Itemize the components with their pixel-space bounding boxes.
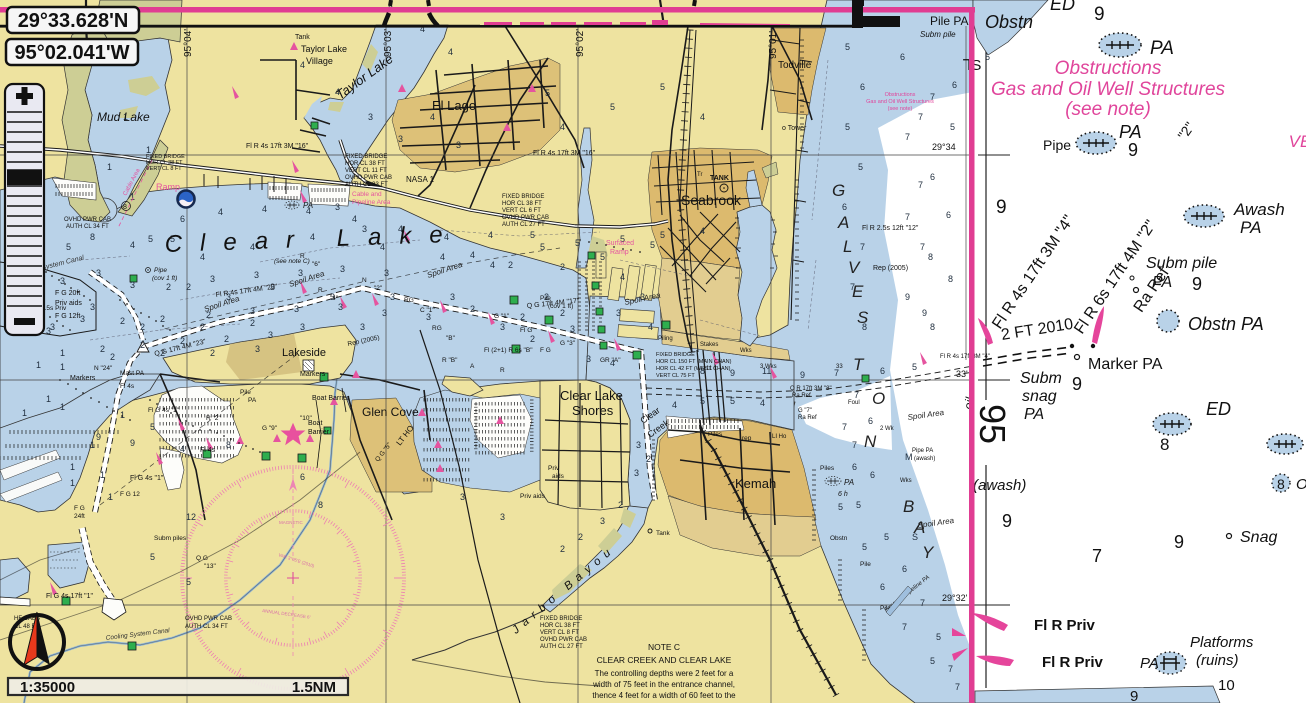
svg-text:5: 5: [600, 252, 605, 262]
svg-text:6 h: 6 h: [838, 491, 848, 498]
svg-text:5: 5: [540, 242, 545, 252]
svg-text:24ft: 24ft: [74, 513, 85, 520]
svg-text:29°33.628'N: 29°33.628'N: [18, 10, 129, 32]
svg-text:2: 2: [166, 282, 171, 292]
svg-text:3: 3: [570, 324, 575, 334]
svg-text:Barrier: Barrier: [308, 429, 330, 436]
svg-text:4: 4: [488, 230, 493, 240]
svg-text:7: 7: [920, 598, 925, 608]
svg-text:1: 1: [22, 408, 27, 418]
svg-text:Priv: Priv: [548, 465, 560, 472]
svg-text:(cov 1 ft): (cov 1 ft): [152, 275, 177, 282]
svg-text:Ramp: Ramp: [610, 249, 629, 256]
svg-text:1: 1: [70, 478, 75, 488]
svg-text:Subm: Subm: [1020, 370, 1062, 387]
svg-text:HOR CL 38 FT: HOR CL 38 FT: [345, 161, 385, 167]
svg-text:9: 9: [1192, 274, 1202, 294]
svg-text:R "B": R "B": [442, 357, 458, 364]
svg-text:5: 5: [936, 632, 941, 642]
svg-text:2: 2: [100, 344, 105, 354]
svg-text:3: 3: [636, 440, 641, 450]
svg-text:3: 3: [130, 280, 135, 290]
svg-text:Glen Cove: Glen Cove: [362, 405, 419, 419]
svg-text:3: 3: [80, 314, 85, 324]
svg-text:1: 1: [120, 410, 125, 420]
svg-text:Fl 4s: Fl 4s: [200, 447, 216, 454]
svg-text:G "3": G "3": [560, 340, 576, 347]
svg-text:snag: snag: [1022, 388, 1057, 405]
svg-text:8: 8: [928, 252, 933, 262]
svg-text:4: 4: [448, 47, 453, 57]
svg-text:Q R 17ft 3M "8": Q R 17ft 3M "8": [790, 386, 832, 392]
svg-text:3: 3: [360, 322, 365, 332]
svg-text:95°03': 95°03': [383, 29, 394, 57]
svg-text:6: 6: [952, 80, 957, 90]
svg-text:Fl R 4s 17ft 3M "4": Fl R 4s 17ft 3M "4": [940, 354, 990, 360]
svg-text:1:35000: 1:35000: [20, 679, 75, 696]
svg-text:7: 7: [842, 422, 847, 432]
svg-text:2: 2: [520, 312, 525, 322]
svg-text:PA: PA: [303, 201, 313, 210]
svg-text:rep: rep: [742, 435, 752, 442]
svg-text:Tank: Tank: [656, 530, 670, 537]
svg-text:3: 3: [268, 330, 273, 340]
svg-text:OVHD PWR CAB: OVHD PWR CAB: [502, 215, 549, 221]
svg-text:7: 7: [905, 212, 910, 222]
svg-text:3: 3: [335, 202, 340, 212]
svg-text:Shores: Shores: [572, 403, 614, 418]
svg-text:HOR CL 42 FT (WEST CHAN): HOR CL 42 FT (WEST CHAN): [656, 366, 731, 372]
svg-text:5: 5: [150, 422, 155, 432]
svg-text:Pipeline Area: Pipeline Area: [352, 199, 391, 206]
svg-text:RG: RG: [404, 297, 414, 304]
svg-text:G: G: [832, 181, 845, 200]
svg-text:3: 3: [96, 268, 101, 278]
svg-text:(see note): (see note): [888, 106, 913, 112]
svg-text:OVHD PWR CAB: OVHD PWR CAB: [540, 637, 587, 643]
svg-text:3 Wks: 3 Wks: [760, 364, 777, 370]
svg-text:FIXED BRIDGE: FIXED BRIDGE: [502, 194, 544, 200]
svg-text:2 Wk: 2 Wk: [880, 426, 895, 432]
svg-text:3: 3: [384, 268, 389, 278]
svg-text:Village: Village: [306, 56, 333, 66]
svg-text:VERT CL 6 FT: VERT CL 6 FT: [502, 208, 541, 214]
svg-text:4: 4: [470, 250, 475, 260]
svg-text:5: 5: [862, 542, 867, 552]
svg-text:Taylor Lake: Taylor Lake: [301, 44, 347, 54]
svg-text:1: 1: [107, 162, 112, 172]
svg-text:7: 7: [902, 622, 907, 632]
svg-text:PA: PA: [248, 397, 257, 404]
svg-text:6: 6: [900, 52, 905, 62]
svg-text:PA: PA: [1150, 38, 1174, 59]
svg-text:3: 3: [390, 292, 395, 302]
svg-text:2: 2: [250, 318, 255, 328]
svg-text:9: 9: [1128, 140, 1138, 160]
svg-text:VE: VE: [1289, 132, 1306, 151]
svg-text:RG: RG: [432, 325, 442, 332]
svg-text:(awash): (awash): [914, 456, 935, 462]
svg-text:6: 6: [852, 462, 857, 472]
svg-text:95: 95: [972, 404, 1013, 444]
svg-text:9: 9: [1130, 688, 1138, 703]
svg-text:5: 5: [610, 102, 615, 112]
svg-text:9: 9: [800, 370, 805, 380]
svg-text:aids: aids: [552, 473, 565, 480]
svg-text:C "1": C "1": [420, 307, 435, 314]
svg-text:Y: Y: [922, 543, 935, 562]
svg-text:CLEAR CREEK AND CLEAR LAKE: CLEAR CREEK AND CLEAR LAKE: [597, 655, 732, 665]
svg-text:Ra Ref: Ra Ref: [792, 393, 811, 399]
svg-text:9: 9: [922, 308, 927, 318]
svg-text:HOR CL 150 FT (MAIN CHAN): HOR CL 150 FT (MAIN CHAN): [656, 359, 732, 365]
svg-text:6: 6: [300, 472, 305, 482]
svg-text:9: 9: [130, 438, 135, 448]
svg-text:7: 7: [854, 390, 859, 400]
svg-text:5: 5: [884, 532, 889, 542]
svg-text:G "1": G "1": [494, 313, 510, 320]
svg-text:3: 3: [616, 308, 621, 318]
svg-text:3: 3: [398, 134, 403, 144]
svg-text:Fl (2+1) R 6s "B": Fl (2+1) R 6s "B": [484, 347, 533, 354]
svg-text:Obstn: Obstn: [985, 12, 1033, 32]
svg-text:29°32': 29°32': [942, 593, 968, 603]
svg-text:Kemah: Kemah: [735, 476, 776, 491]
svg-text:3: 3: [338, 302, 343, 312]
svg-text:3: 3: [340, 264, 345, 274]
svg-text:R "2": R "2": [206, 415, 221, 422]
svg-text:R: R: [500, 367, 505, 374]
svg-text:VERT CL 75 FT: VERT CL 75 FT: [656, 373, 695, 379]
svg-text:3: 3: [90, 302, 95, 312]
svg-text:2: 2: [560, 262, 565, 272]
svg-text:PA: PA: [1119, 122, 1142, 142]
svg-text:2: 2: [160, 314, 165, 324]
svg-text:5: 5: [545, 88, 550, 98]
svg-text:Awash: Awash: [1233, 200, 1285, 219]
svg-text:8: 8: [318, 500, 323, 510]
svg-text:E: E: [852, 282, 864, 301]
svg-text:95°04': 95°04': [183, 29, 194, 57]
svg-text:3: 3: [255, 344, 260, 354]
svg-text:Fl R 4s 17ft 3M "16": Fl R 4s 17ft 3M "16": [533, 150, 596, 157]
svg-text:(ruins): (ruins): [1196, 652, 1239, 669]
svg-text:Subm pile: Subm pile: [920, 30, 956, 39]
svg-text:Snag: Snag: [1240, 529, 1277, 546]
svg-text:FIXED BRIDGE: FIXED BRIDGE: [656, 352, 695, 358]
svg-text:5: 5: [730, 396, 735, 406]
svg-text:6: 6: [180, 214, 185, 224]
svg-text:AUTH CL 27 FT: AUTH CL 27 FT: [540, 644, 583, 650]
svg-text:Surfaced: Surfaced: [606, 240, 634, 247]
svg-text:Mast PA: Mast PA: [120, 370, 145, 377]
svg-text:3: 3: [294, 304, 299, 314]
svg-text:5: 5: [930, 656, 935, 666]
svg-text:5: 5: [838, 502, 843, 512]
svg-text:Seabrook: Seabrook: [681, 192, 742, 208]
svg-text:3: 3: [586, 354, 591, 364]
svg-text:2: 2: [120, 316, 125, 326]
svg-text:8: 8: [90, 232, 95, 242]
svg-text:5: 5: [700, 396, 705, 406]
svg-text:4: 4: [700, 226, 705, 236]
svg-text:PA: PA: [1024, 406, 1044, 423]
svg-text:9: 9: [996, 197, 1007, 218]
svg-text:AUTH CL 34 FT: AUTH CL 34 FT: [185, 624, 228, 630]
svg-text:The controlling depths were 2: The controlling depths were 2 feet for a: [595, 669, 734, 678]
svg-text:2: 2: [508, 260, 513, 270]
svg-text:8: 8: [948, 274, 953, 284]
svg-text:Obstn: Obstn: [830, 535, 848, 542]
svg-text:Markers: Markers: [300, 371, 326, 378]
svg-text:Fl G 4s "1": Fl G 4s "1": [148, 407, 180, 414]
svg-text:4: 4: [300, 60, 305, 70]
svg-text:11: 11: [706, 366, 713, 372]
svg-text:10: 10: [1218, 677, 1235, 694]
svg-text:4: 4: [700, 112, 705, 122]
svg-text:2: 2: [470, 304, 475, 314]
svg-text:5: 5: [950, 122, 955, 132]
svg-text:NASA 1: NASA 1: [406, 175, 435, 184]
svg-text:3: 3: [500, 512, 505, 522]
svg-text:8: 8: [930, 322, 935, 332]
svg-text:4: 4: [180, 444, 185, 454]
svg-text:Fl R Priv: Fl R Priv: [1034, 617, 1096, 634]
svg-text:9: 9: [730, 368, 735, 378]
svg-text:LI Ho: LI Ho: [772, 434, 787, 440]
svg-text:5: 5: [186, 577, 191, 587]
svg-text:12: 12: [186, 512, 196, 522]
svg-text:Fl G: Fl G: [520, 327, 532, 334]
svg-text:F G: F G: [74, 505, 85, 512]
svg-text:"6": "6": [312, 261, 321, 268]
svg-text:9: 9: [1072, 374, 1082, 394]
svg-text:Subm piles: Subm piles: [154, 535, 187, 542]
svg-text:3: 3: [450, 292, 455, 302]
svg-text:33: 33: [836, 364, 843, 370]
svg-text:Piling: Piling: [658, 336, 673, 342]
svg-text:HOR CL 38 FT: HOR CL 38 FT: [540, 623, 580, 629]
svg-text:Obstructions: Obstructions: [1055, 58, 1162, 79]
svg-text:8: 8: [1160, 435, 1169, 454]
svg-text:4: 4: [440, 252, 445, 262]
svg-text:Tr: Tr: [697, 172, 702, 178]
svg-text:5: 5: [845, 42, 850, 52]
svg-text:95°01': 95°01': [768, 31, 779, 59]
svg-text:3: 3: [368, 112, 373, 122]
svg-text:Boat Barrier: Boat Barrier: [312, 395, 350, 402]
svg-text:Rep (2005): Rep (2005): [873, 265, 908, 272]
svg-text:A: A: [837, 213, 849, 232]
svg-text:Pipe PA: Pipe PA: [912, 448, 933, 454]
svg-text:1: 1: [60, 402, 65, 412]
svg-text:FIXED BRIDGE: FIXED BRIDGE: [540, 616, 582, 622]
svg-text:6: 6: [880, 366, 885, 376]
svg-text:4: 4: [560, 122, 565, 132]
svg-text:6: 6: [860, 82, 865, 92]
svg-text:Q G: Q G: [196, 555, 208, 562]
svg-text:N "24": N "24": [94, 365, 113, 372]
svg-text:1: 1: [108, 492, 113, 502]
svg-text:"13": "13": [204, 563, 217, 570]
svg-text:1: 1: [100, 470, 105, 480]
svg-text:7: 7: [918, 180, 923, 190]
svg-text:95°02.041'W: 95°02.041'W: [14, 42, 129, 64]
svg-text:Wks: Wks: [740, 348, 752, 354]
svg-text:N: N: [362, 277, 367, 284]
svg-text:6: 6: [870, 470, 875, 480]
svg-text:3: 3: [500, 322, 505, 332]
svg-text:Lakeside: Lakeside: [282, 347, 326, 359]
svg-text:O: O: [1296, 476, 1306, 493]
svg-text:V: V: [848, 258, 861, 277]
svg-text:S: S: [857, 308, 869, 327]
svg-text:R: R: [318, 287, 323, 294]
svg-text:F G 12: F G 12: [120, 491, 140, 498]
svg-text:O: O: [872, 389, 885, 408]
svg-text:9: 9: [96, 432, 101, 442]
svg-text:El Lago: El Lago: [432, 98, 476, 113]
svg-text:6: 6: [880, 582, 885, 592]
svg-text:A: A: [470, 363, 475, 370]
svg-text:1: 1: [60, 362, 65, 372]
svg-text:L: L: [843, 237, 852, 256]
svg-text:3: 3: [600, 516, 605, 526]
svg-text:6: 6: [842, 202, 847, 212]
svg-text:Priv aids: Priv aids: [520, 493, 546, 500]
svg-text:5: 5: [150, 552, 155, 562]
svg-text:OVHD PWR CAB: OVHD PWR CAB: [185, 616, 232, 622]
svg-text:Fl R 4s 17ft 3M "16": Fl R 4s 17ft 3M "16": [246, 143, 309, 150]
svg-text:1: 1: [36, 360, 41, 370]
svg-text:F G: F G: [540, 347, 551, 354]
svg-text:1: 1: [130, 192, 135, 202]
svg-text:4: 4: [490, 260, 495, 270]
svg-text:33': 33': [956, 369, 968, 379]
svg-text:Obstn PA: Obstn PA: [1188, 314, 1264, 334]
svg-text:7: 7: [860, 242, 865, 252]
svg-text:Pipe: Pipe: [154, 267, 167, 274]
svg-text:2: 2: [140, 340, 145, 350]
svg-text:6: 6: [868, 416, 873, 426]
svg-text:95°02': 95°02': [575, 29, 586, 57]
svg-text:29°34: 29°34: [932, 142, 956, 152]
svg-text:HOR CL 38 FT: HOR CL 38 FT: [502, 201, 542, 207]
svg-text:Piles: Piles: [820, 465, 835, 472]
svg-text:2: 2: [530, 334, 535, 344]
svg-text:Tank: Tank: [295, 34, 310, 41]
svg-text:1.5NM: 1.5NM: [292, 679, 336, 696]
svg-text:T: T: [853, 355, 865, 374]
svg-text:AUTH CL 27 FT: AUTH CL 27 FT: [502, 222, 545, 228]
svg-text:3: 3: [210, 274, 215, 284]
svg-text:9: 9: [1002, 511, 1012, 531]
svg-text:7: 7: [948, 664, 953, 674]
svg-text:Platforms: Platforms: [1190, 634, 1254, 651]
svg-text:(see note C): (see note C): [274, 258, 310, 265]
svg-text:7: 7: [1092, 546, 1102, 566]
svg-text:2: 2: [224, 334, 229, 344]
svg-text:o Tower: o Tower: [782, 125, 807, 132]
svg-text:3: 3: [300, 322, 305, 332]
svg-text:3: 3: [456, 140, 461, 150]
svg-text:6: 6: [930, 172, 935, 182]
svg-text:Fl R Priv: Fl R Priv: [1042, 654, 1104, 671]
svg-text:Fl G 4s "1": Fl G 4s "1": [130, 475, 164, 482]
svg-text:Pile: Pile: [240, 389, 251, 396]
svg-text:G "9": G "9": [262, 425, 278, 432]
svg-text:Boat: Boat: [308, 420, 322, 427]
svg-text:5: 5: [66, 242, 71, 252]
svg-text:"2": "2": [374, 285, 383, 292]
svg-text:4: 4: [218, 207, 223, 217]
svg-text:4: 4: [262, 204, 267, 214]
svg-text:4: 4: [430, 112, 435, 122]
svg-text:Obstructions: Obstructions: [885, 92, 916, 98]
svg-text:1: 1: [60, 348, 65, 358]
svg-text:8: 8: [226, 440, 231, 450]
svg-text:8: 8: [1277, 476, 1285, 492]
svg-text:2: 2: [186, 282, 191, 292]
svg-text:2: 2: [110, 352, 115, 362]
svg-text:6: 6: [946, 210, 951, 220]
svg-text:3: 3: [46, 326, 51, 336]
svg-text:2: 2: [140, 322, 145, 332]
svg-text:3: 3: [382, 308, 387, 318]
svg-text:9: 9: [1174, 532, 1184, 552]
svg-text:2: 2: [578, 532, 583, 542]
svg-text:Todville: Todville: [778, 60, 812, 71]
svg-text:9: 9: [905, 292, 910, 302]
svg-text:F G 12ft: F G 12ft: [55, 313, 80, 320]
svg-text:Ramp: Ramp: [156, 182, 180, 192]
svg-text:width of 75 feet in the en: width of 75 feet in the entrance channel…: [592, 680, 735, 689]
svg-text:4: 4: [352, 214, 357, 224]
svg-text:5: 5: [912, 362, 917, 372]
svg-text:G "7": G "7": [798, 408, 812, 414]
svg-text:Gas and Oil Well Structures: Gas and Oil Well Structures: [866, 99, 934, 105]
svg-text:ED: ED: [1206, 399, 1231, 419]
svg-text:Pile: Pile: [860, 561, 871, 568]
svg-text:Marker PA: Marker PA: [1088, 356, 1163, 373]
svg-text:2: 2: [618, 500, 623, 510]
svg-text:1: 1: [90, 440, 95, 450]
svg-text:8: 8: [123, 204, 127, 211]
svg-text:Markers: Markers: [70, 375, 96, 382]
svg-text:thence 4 feet for a width: thence 4 feet for a width of 60 feet to …: [592, 691, 736, 700]
svg-text:TANK: TANK: [710, 175, 729, 182]
svg-text:OVHD PWR CAB: OVHD PWR CAB: [345, 175, 392, 181]
svg-text:B: B: [903, 497, 914, 516]
svg-text:3: 3: [634, 468, 639, 478]
svg-text:Gas and Oil Well Structures: Gas and Oil Well Structures: [991, 79, 1226, 100]
svg-text:Stakes: Stakes: [700, 342, 718, 348]
svg-text:7: 7: [905, 132, 910, 142]
svg-text:1: 1: [70, 462, 75, 472]
svg-text:7: 7: [955, 682, 960, 692]
svg-text:5: 5: [856, 500, 861, 510]
svg-text:NOTE C: NOTE C: [648, 642, 680, 652]
svg-text:Wks: Wks: [900, 478, 912, 484]
svg-text:VERT CL 11 FT: VERT CL 11 FT: [345, 168, 387, 174]
svg-text:4: 4: [620, 272, 625, 282]
svg-text:7: 7: [918, 112, 923, 122]
svg-text:Ra Ref: Ra Ref: [798, 415, 817, 421]
svg-text:Mud Lake: Mud Lake: [97, 110, 150, 124]
svg-text:5: 5: [530, 230, 535, 240]
svg-text:ED: ED: [1050, 0, 1075, 14]
svg-text:5: 5: [660, 230, 665, 240]
